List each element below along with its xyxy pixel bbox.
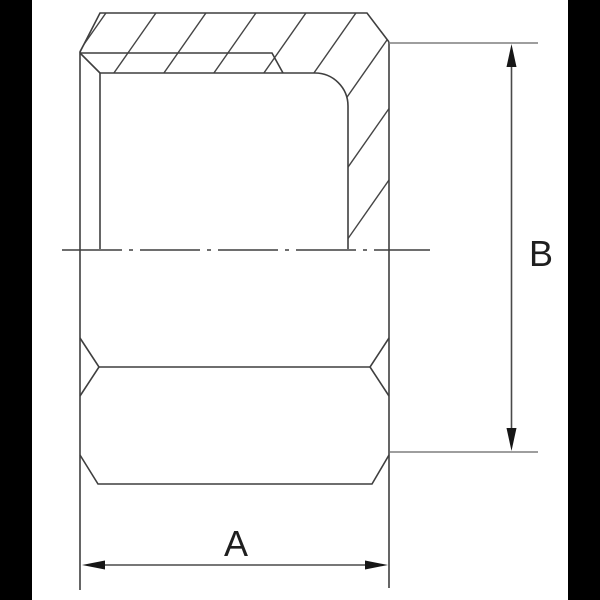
- dimension-label-b: B: [529, 233, 553, 274]
- drawing-background: [0, 0, 600, 600]
- screenshot-canvas: B A: [0, 0, 600, 600]
- matte-band-right: [568, 0, 600, 600]
- matte-band-left: [0, 0, 32, 600]
- dimension-label-a: A: [224, 523, 248, 564]
- technical-drawing: B A: [0, 0, 600, 600]
